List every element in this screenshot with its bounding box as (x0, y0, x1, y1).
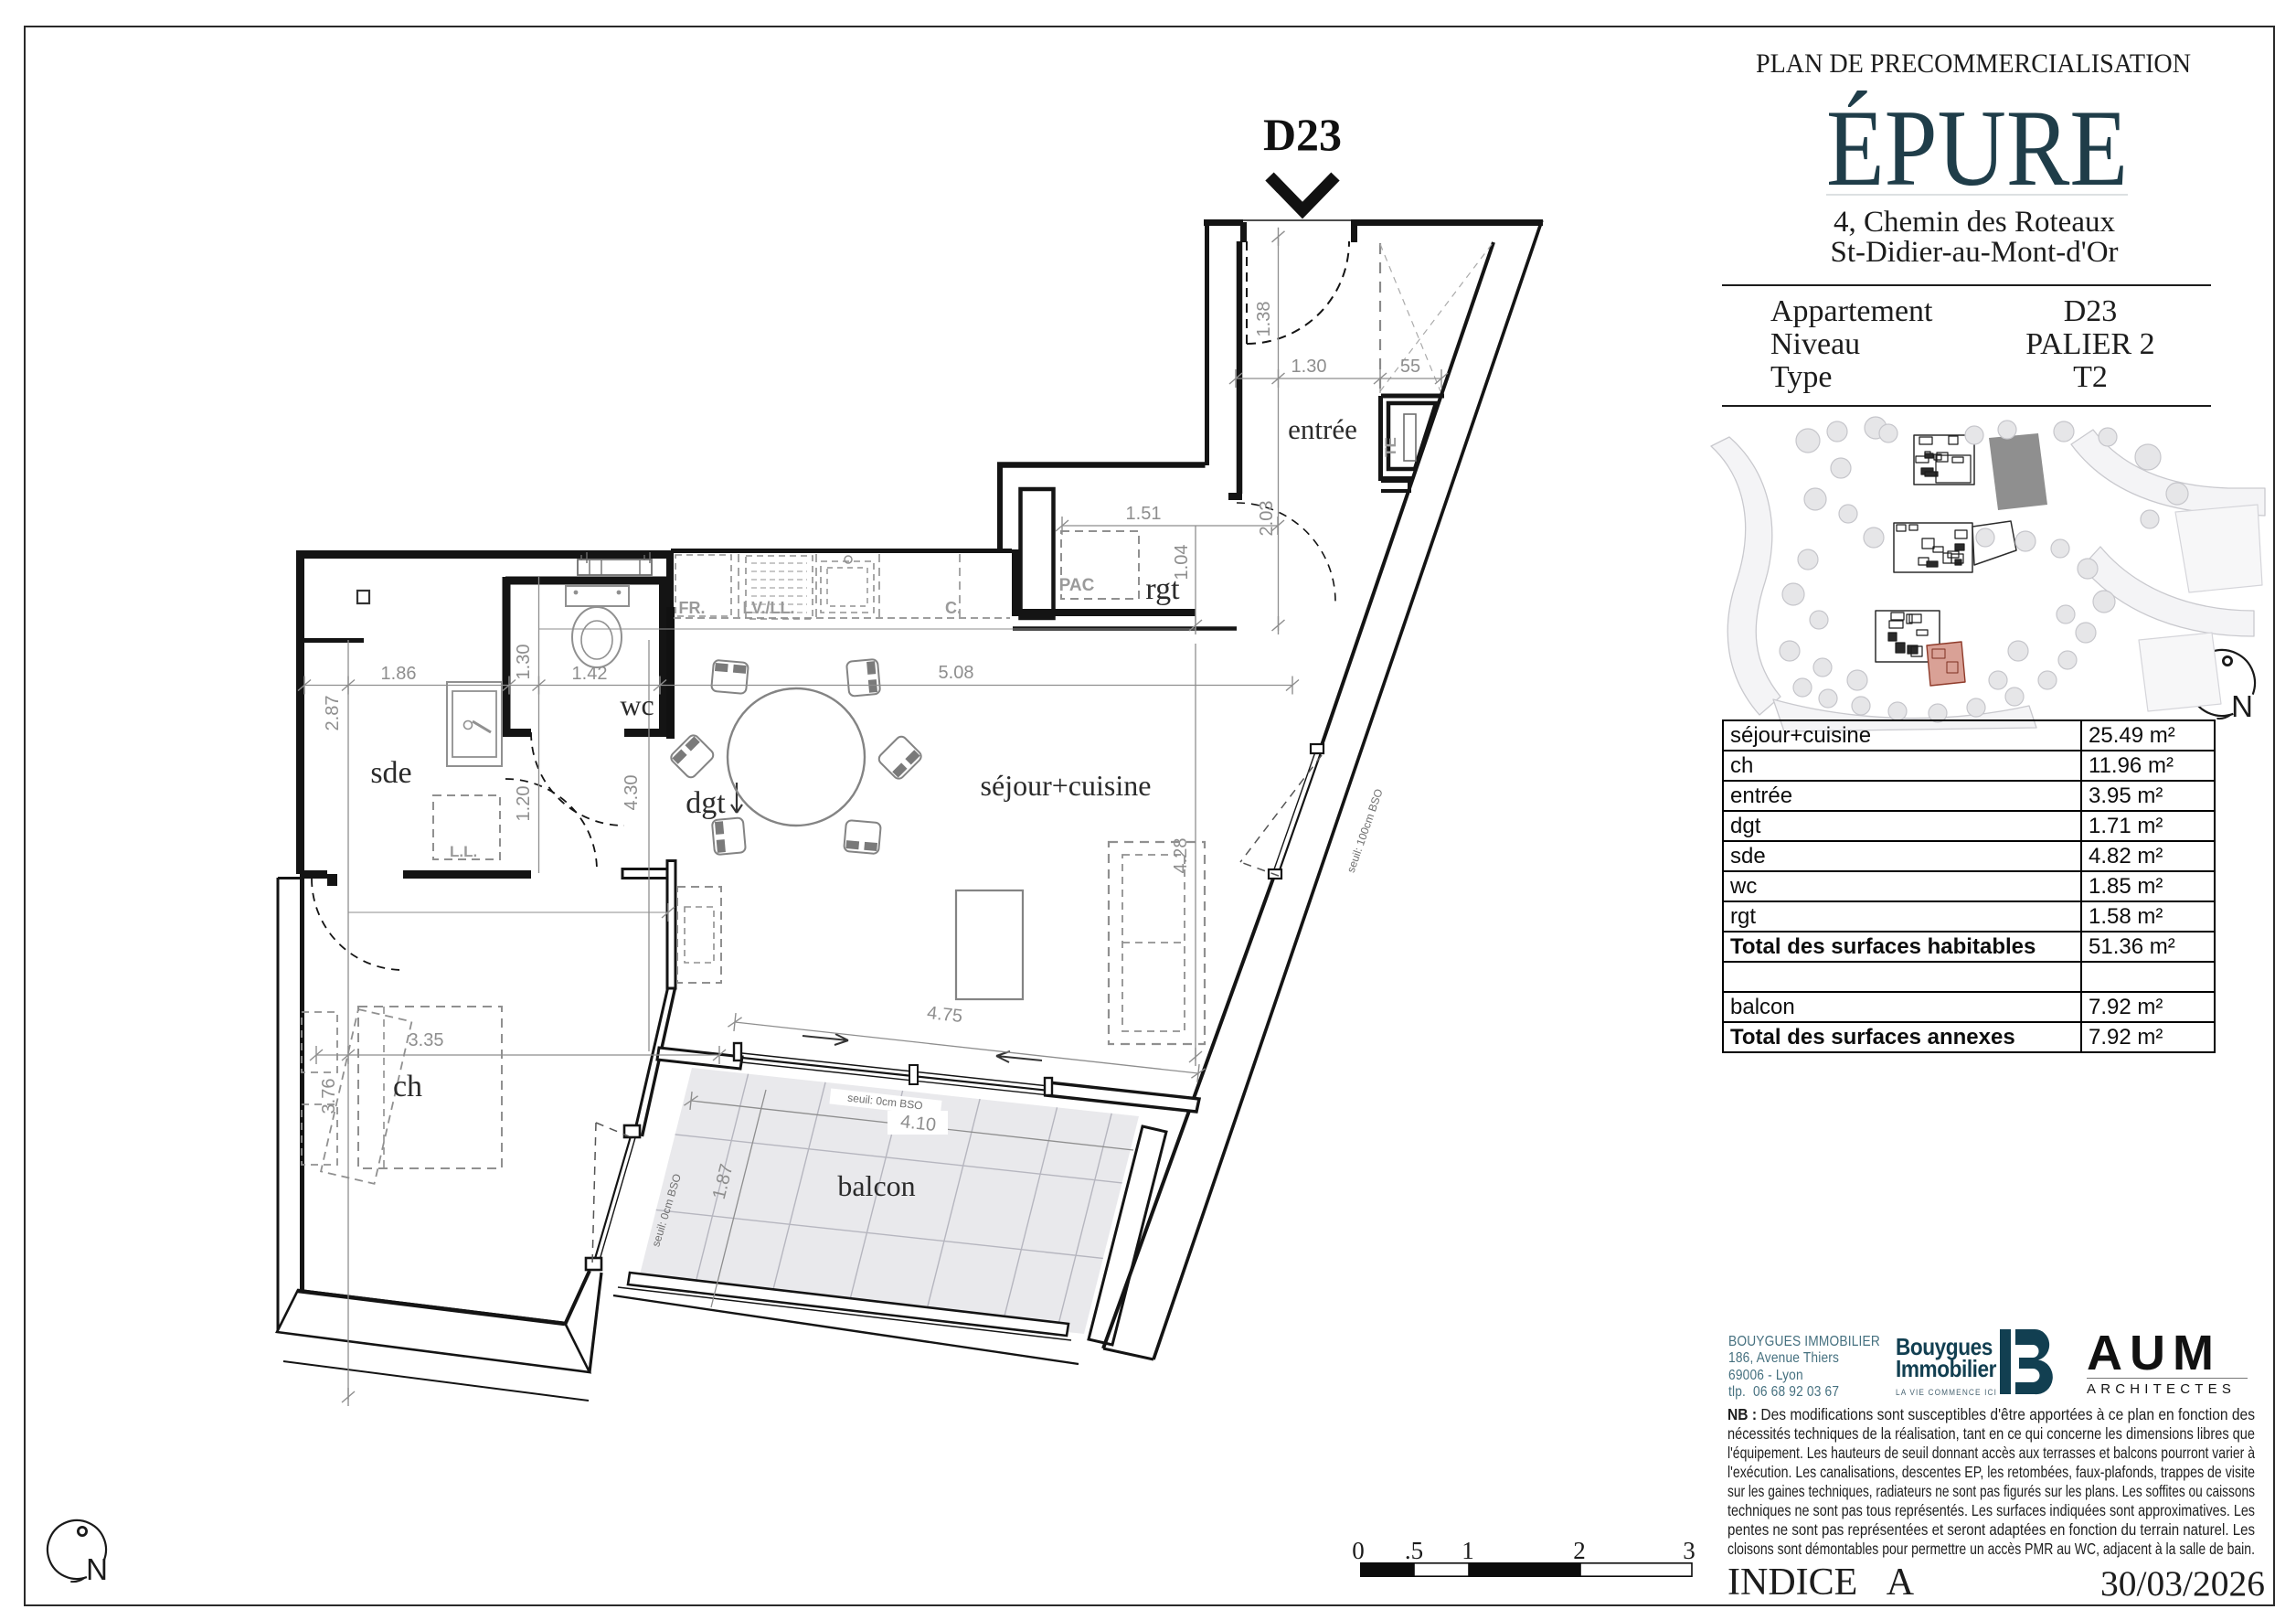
svg-text:4.10: 4.10 (899, 1112, 937, 1135)
svg-text:ch: ch (393, 1070, 422, 1103)
svg-text:sur les gaines techniques, rad: sur les gaines techniques, radiateurs ne… (1727, 1482, 2255, 1500)
svg-text:1.86: 1.86 (381, 664, 417, 684)
svg-text:cloisons sont démontables pour: cloisons sont démontables pour permettre… (1727, 1540, 2255, 1558)
svg-text:NB : Des modifications sont su: NB : Des modifications sont susceptibles… (1727, 1405, 2255, 1423)
svg-text:4, Chemin des Roteaux: 4, Chemin des Roteaux (1834, 206, 2115, 239)
svg-text:TE: TE (1382, 437, 1399, 457)
svg-text:1.38: 1.38 (1254, 302, 1274, 337)
svg-text:PAC: PAC (1059, 576, 1095, 595)
svg-text:3: 3 (1683, 1537, 1695, 1564)
svg-text:1: 1 (1462, 1537, 1474, 1564)
svg-text:4.30: 4.30 (622, 775, 642, 811)
svg-text:nécessités techniques de la ré: nécessités techniques de la réalisation,… (1727, 1424, 2255, 1443)
svg-text:4.28: 4.28 (1171, 838, 1191, 874)
svg-text:2.03: 2.03 (1257, 501, 1277, 537)
svg-text:N: N (2231, 689, 2253, 723)
svg-text:rgt: rgt (1145, 572, 1180, 606)
svg-text:D23: D23 (1263, 109, 1342, 160)
svg-text:l'exécution. Les canalisations: l'exécution. Les canalisations, descente… (1727, 1463, 2255, 1481)
svg-text:LV./LL.: LV./LL. (742, 599, 794, 617)
svg-text:wc: wc (620, 688, 654, 721)
svg-text:l'équipement. Les hauteurs de: l'équipement. Les hauteurs de seuil donn… (1727, 1444, 2255, 1462)
svg-text:5.08: 5.08 (939, 663, 974, 683)
svg-text:St-Didier-au-Mont-d'Or: St-Didier-au-Mont-d'Or (1830, 236, 2118, 269)
svg-text:techniques ne sont pas tous re: techniques ne sont pas tous représentés.… (1727, 1501, 2255, 1519)
svg-text:séjour+cuisine: séjour+cuisine (981, 769, 1152, 802)
svg-text:pentes ne sont pas représentée: pentes ne sont pas représentées et seron… (1727, 1520, 2255, 1539)
svg-text:1.51: 1.51 (1126, 504, 1162, 524)
svg-text:entrée: entrée (1288, 413, 1357, 445)
svg-text:2: 2 (1573, 1537, 1586, 1564)
svg-text:3.76: 3.76 (319, 1079, 339, 1114)
svg-text:1.30: 1.30 (514, 645, 534, 680)
svg-text:balcon: balcon (837, 1169, 915, 1202)
svg-text:L.L.: L.L. (450, 843, 477, 860)
svg-text:0: 0 (1352, 1537, 1365, 1564)
svg-text:ÉPURE: ÉPURE (1826, 87, 2128, 208)
svg-text:1.30: 1.30 (1291, 357, 1327, 377)
svg-text:PLAN DE PRECOMMERCIALISATION: PLAN DE PRECOMMERCIALISATION (1756, 48, 2191, 79)
svg-text:3.35: 3.35 (409, 1030, 444, 1050)
svg-text:55: 55 (1400, 357, 1420, 377)
svg-text:1.42: 1.42 (572, 664, 608, 684)
svg-text:C.: C. (945, 599, 962, 617)
svg-text:seuil: 100cm BSO: seuil: 100cm BSO (1345, 787, 1386, 874)
svg-text:FR.: FR. (679, 599, 706, 617)
svg-text:2.87: 2.87 (323, 696, 343, 731)
svg-text:sde: sde (370, 756, 411, 790)
svg-text:4.75: 4.75 (926, 1003, 963, 1027)
svg-text:1.20: 1.20 (514, 786, 534, 822)
svg-text:.5: .5 (1405, 1537, 1423, 1564)
svg-text:dgt: dgt (686, 786, 726, 820)
svg-text:N: N (86, 1552, 108, 1586)
